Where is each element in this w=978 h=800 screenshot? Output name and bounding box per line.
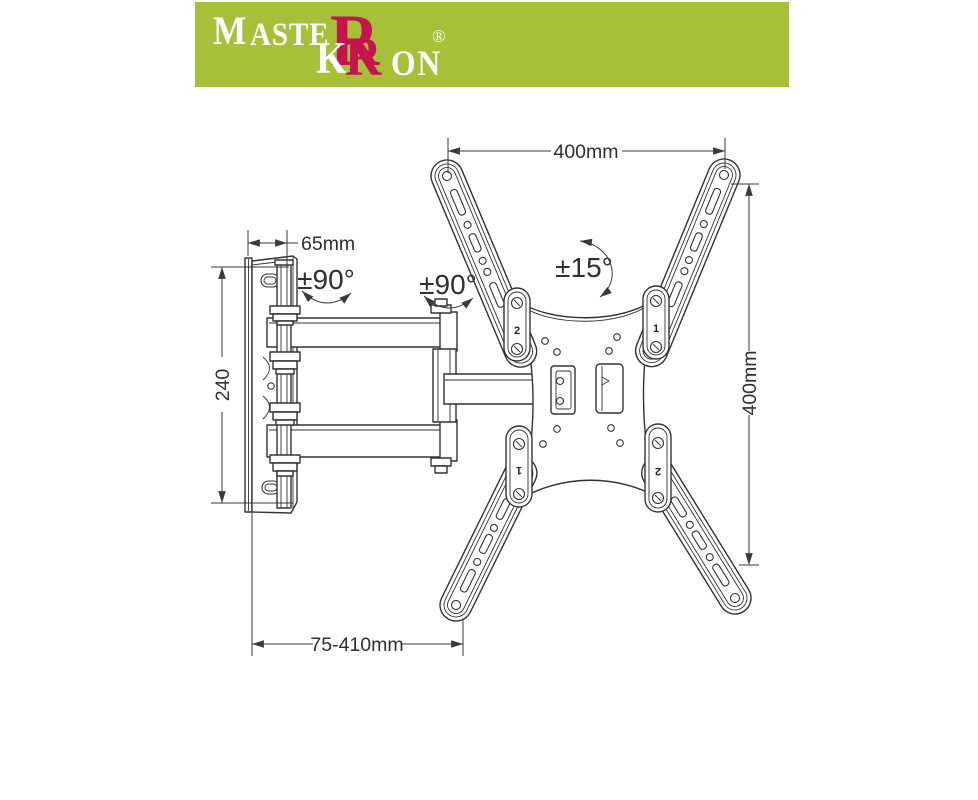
vesa-plate	[517, 298, 658, 500]
annotation-tilt: ±15°	[555, 241, 613, 297]
tilt-label: ±15°	[555, 252, 613, 283]
center-bracket-right	[596, 364, 623, 413]
dimension-vesa-width: 400mm	[448, 138, 725, 173]
slot-number-top-right: 1	[653, 323, 659, 335]
annotation-swivel-arm: ±90°	[419, 269, 477, 308]
corner-mount-bottom-left: 1	[506, 426, 532, 507]
annotation-swivel-wall: ±90°	[297, 264, 355, 303]
dimension-extension-range: 75-410mm	[252, 513, 463, 656]
slot-number-top-left: 2	[514, 325, 520, 337]
swivel-wall-label: ±90°	[297, 264, 355, 295]
vesa-height-label: 400mm	[739, 350, 761, 415]
extension-range-label: 75-410mm	[310, 634, 403, 656]
wall-plate-height-label: 240	[212, 369, 234, 402]
wall-plate-depth-label: 65mm	[301, 233, 355, 255]
slot-number-bottom-left: 1	[516, 464, 522, 476]
corner-mount-bottom-right: 2	[645, 424, 671, 512]
center-bracket-left	[551, 366, 575, 414]
corner-mount-top-right: 1	[643, 286, 669, 359]
swivel-arm-label: ±90°	[419, 269, 477, 300]
slot-number-bottom-right: 2	[655, 465, 661, 477]
vesa-width-label: 400mm	[553, 141, 618, 163]
corner-mount-top-left: 2	[504, 288, 530, 361]
dimension-vesa-height: 400mm	[731, 184, 761, 565]
tv-wall-mount-diagram: 2 1 1 2 400mm 400mm	[0, 0, 978, 800]
